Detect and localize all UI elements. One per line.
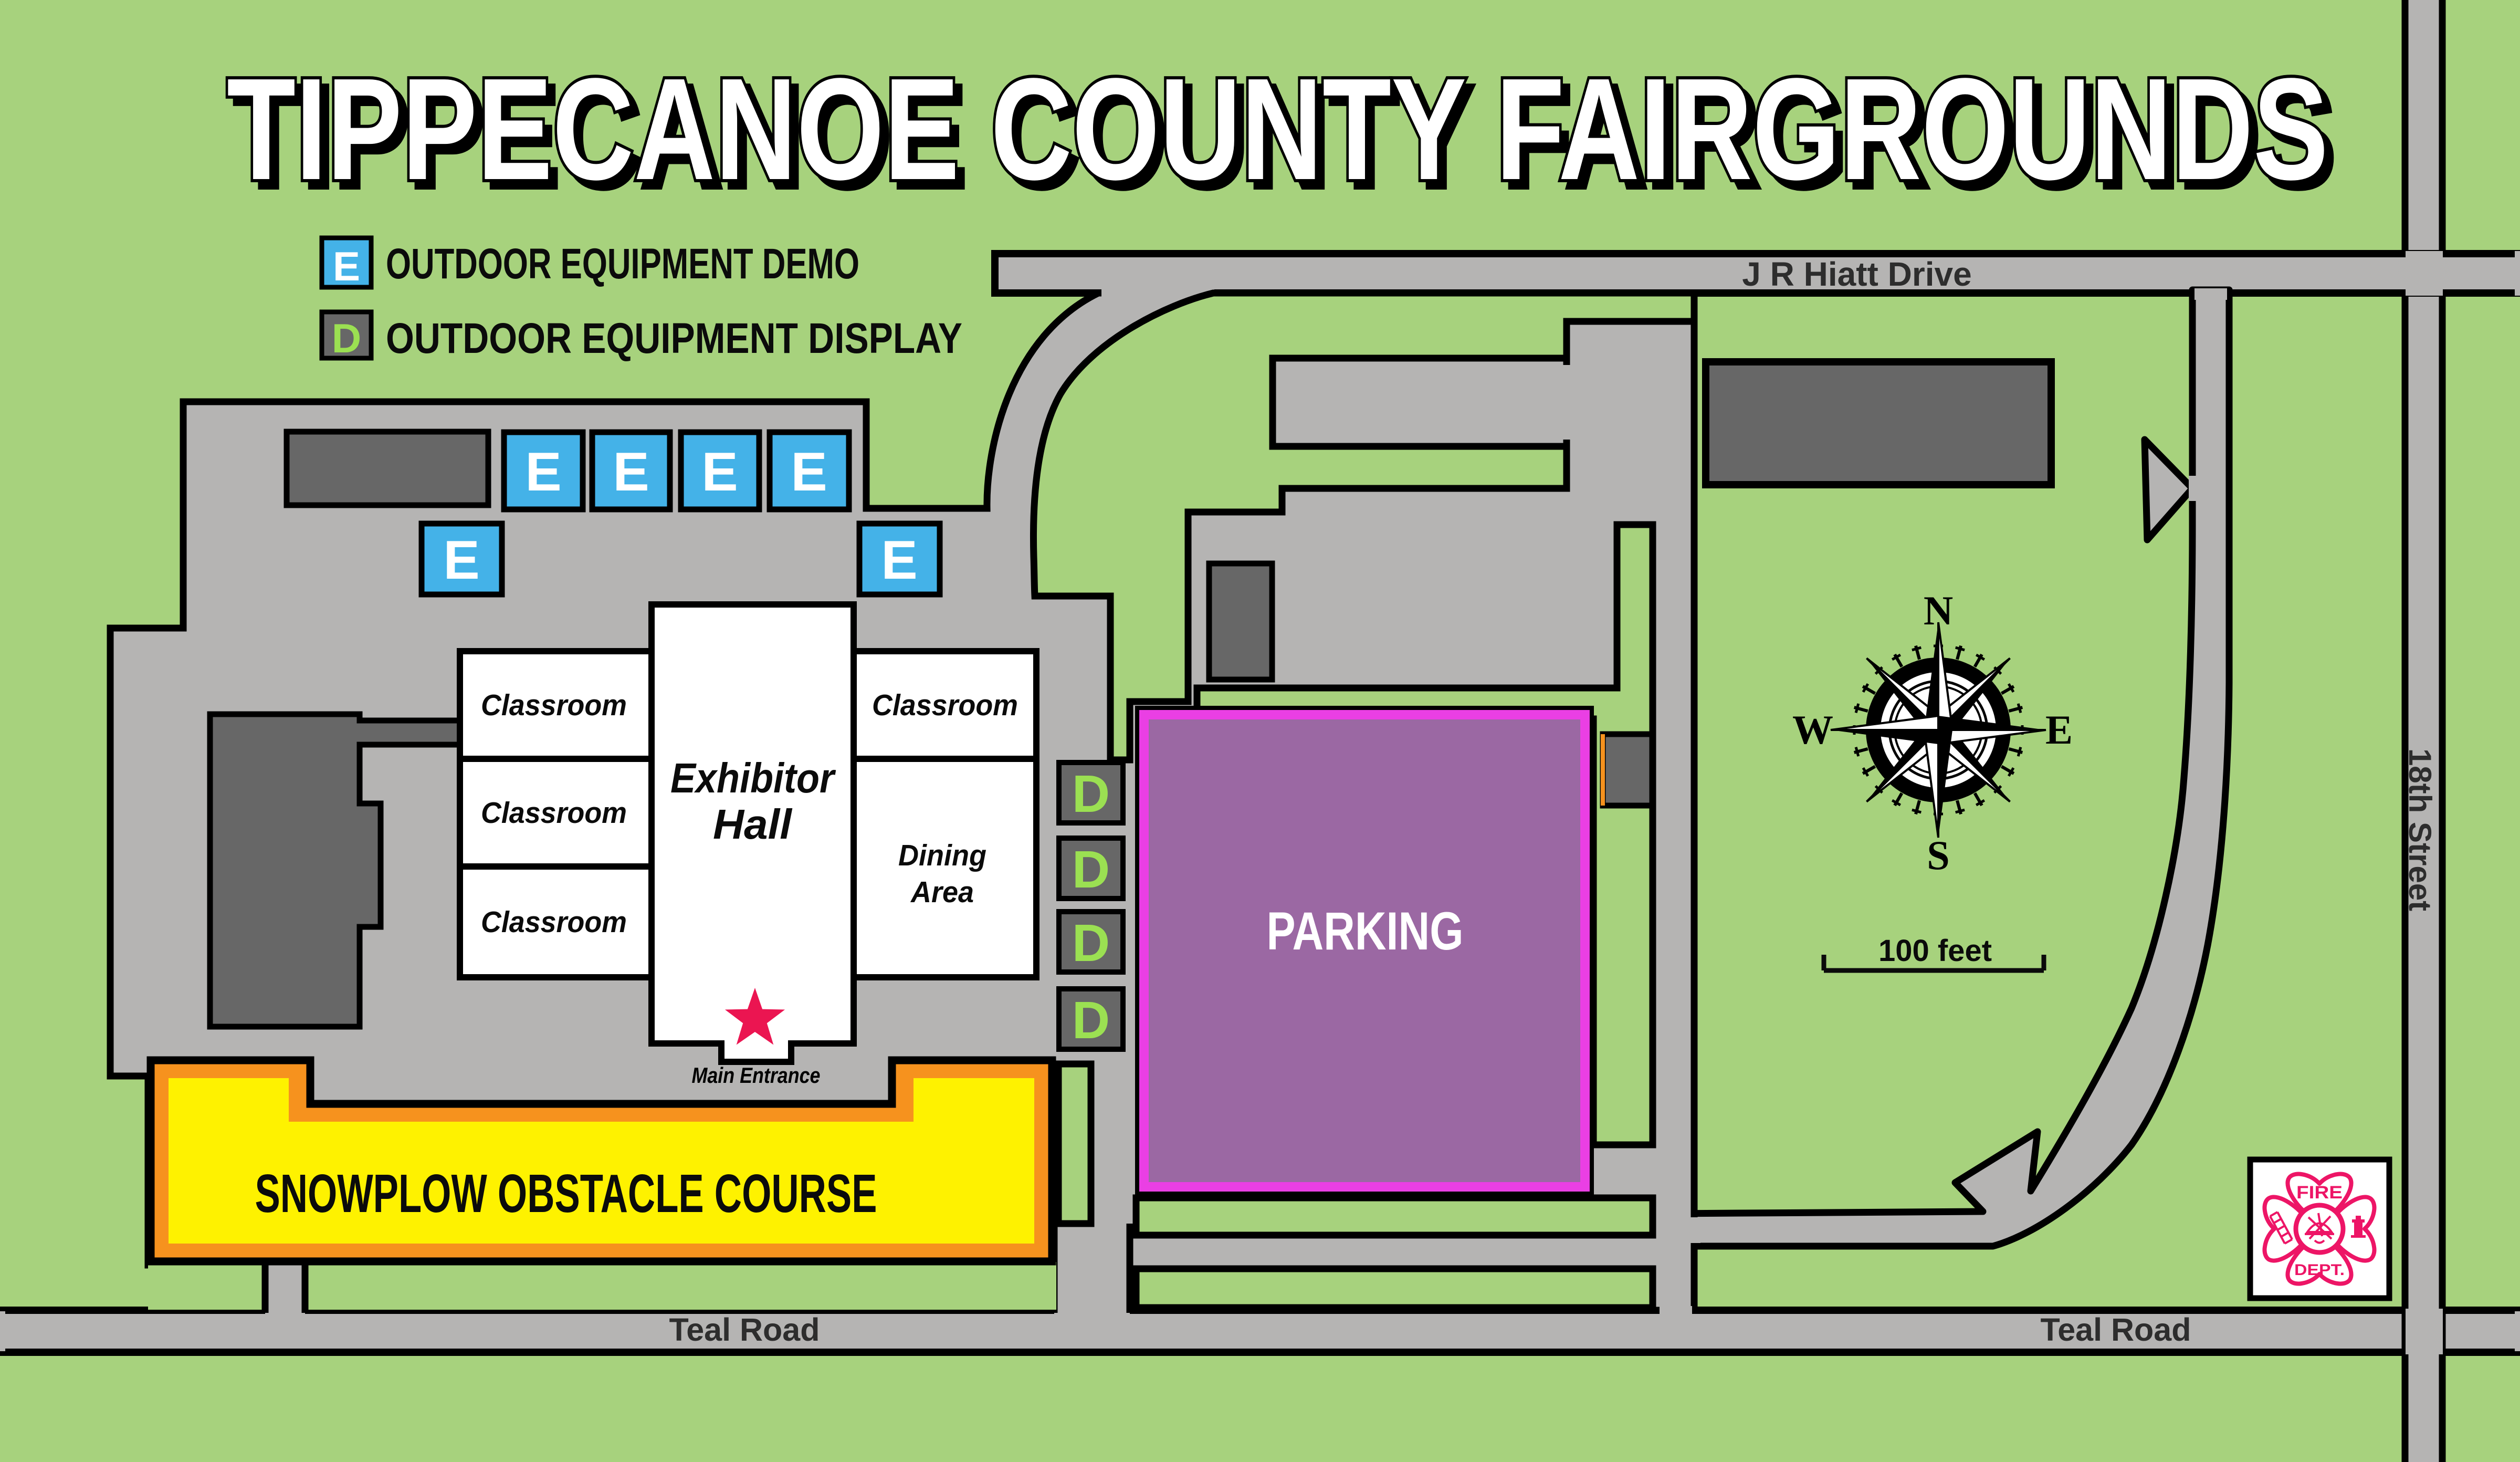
svg-text:D: D — [1072, 991, 1110, 1050]
svg-text:PARKING: PARKING — [1267, 901, 1464, 961]
svg-text:18th Street: 18th Street — [2402, 748, 2438, 911]
svg-text:Teal Road: Teal Road — [2041, 1312, 2191, 1348]
svg-text:S: S — [1927, 832, 1949, 878]
svg-text:Hall: Hall — [713, 801, 793, 848]
svg-text:E: E — [443, 530, 479, 591]
svg-text:OUTDOOR EQUIPMENT DISPLAY: OUTDOOR EQUIPMENT DISPLAY — [386, 315, 962, 362]
svg-text:E: E — [701, 442, 738, 503]
svg-text:TIPPECANOE COUNTY FAIRGROUNDS: TIPPECANOE COUNTY FAIRGROUNDS — [227, 48, 2328, 210]
svg-text:D: D — [1072, 765, 1110, 823]
svg-text:E: E — [525, 442, 561, 503]
svg-text:E: E — [613, 442, 649, 503]
svg-text:E: E — [333, 243, 360, 289]
svg-text:Classroom: Classroom — [481, 688, 627, 722]
svg-text:Dining: Dining — [898, 839, 986, 872]
svg-text:DEPT.: DEPT. — [2294, 1261, 2345, 1279]
svg-text:SNOWPLOW OBSTACLE COURSE: SNOWPLOW OBSTACLE COURSE — [255, 1163, 877, 1224]
svg-text:Exhibitor: Exhibitor — [670, 755, 836, 801]
svg-text:W: W — [1792, 707, 1833, 753]
svg-text:E: E — [791, 442, 827, 503]
svg-text:Classroom: Classroom — [481, 905, 627, 939]
svg-text:D: D — [1072, 914, 1110, 973]
svg-text:Main Entrance: Main Entrance — [692, 1063, 821, 1088]
svg-text:D: D — [332, 315, 361, 361]
svg-text:Classroom: Classroom — [481, 796, 627, 830]
svg-text:E: E — [2045, 707, 2073, 753]
svg-text:N: N — [1924, 588, 1953, 633]
svg-text:Classroom: Classroom — [872, 688, 1018, 722]
svg-text:100 feet: 100 feet — [1878, 934, 1992, 968]
svg-text:OUTDOOR EQUIPMENT DEMO: OUTDOOR EQUIPMENT DEMO — [386, 240, 859, 288]
svg-text:Area: Area — [910, 875, 974, 909]
svg-text:D: D — [1072, 840, 1110, 899]
svg-text:Teal Road: Teal Road — [669, 1312, 820, 1348]
svg-text:J R Hiatt Drive: J R Hiatt Drive — [1742, 255, 1971, 293]
svg-text:FIRE: FIRE — [2296, 1183, 2343, 1203]
svg-text:E: E — [881, 530, 917, 591]
